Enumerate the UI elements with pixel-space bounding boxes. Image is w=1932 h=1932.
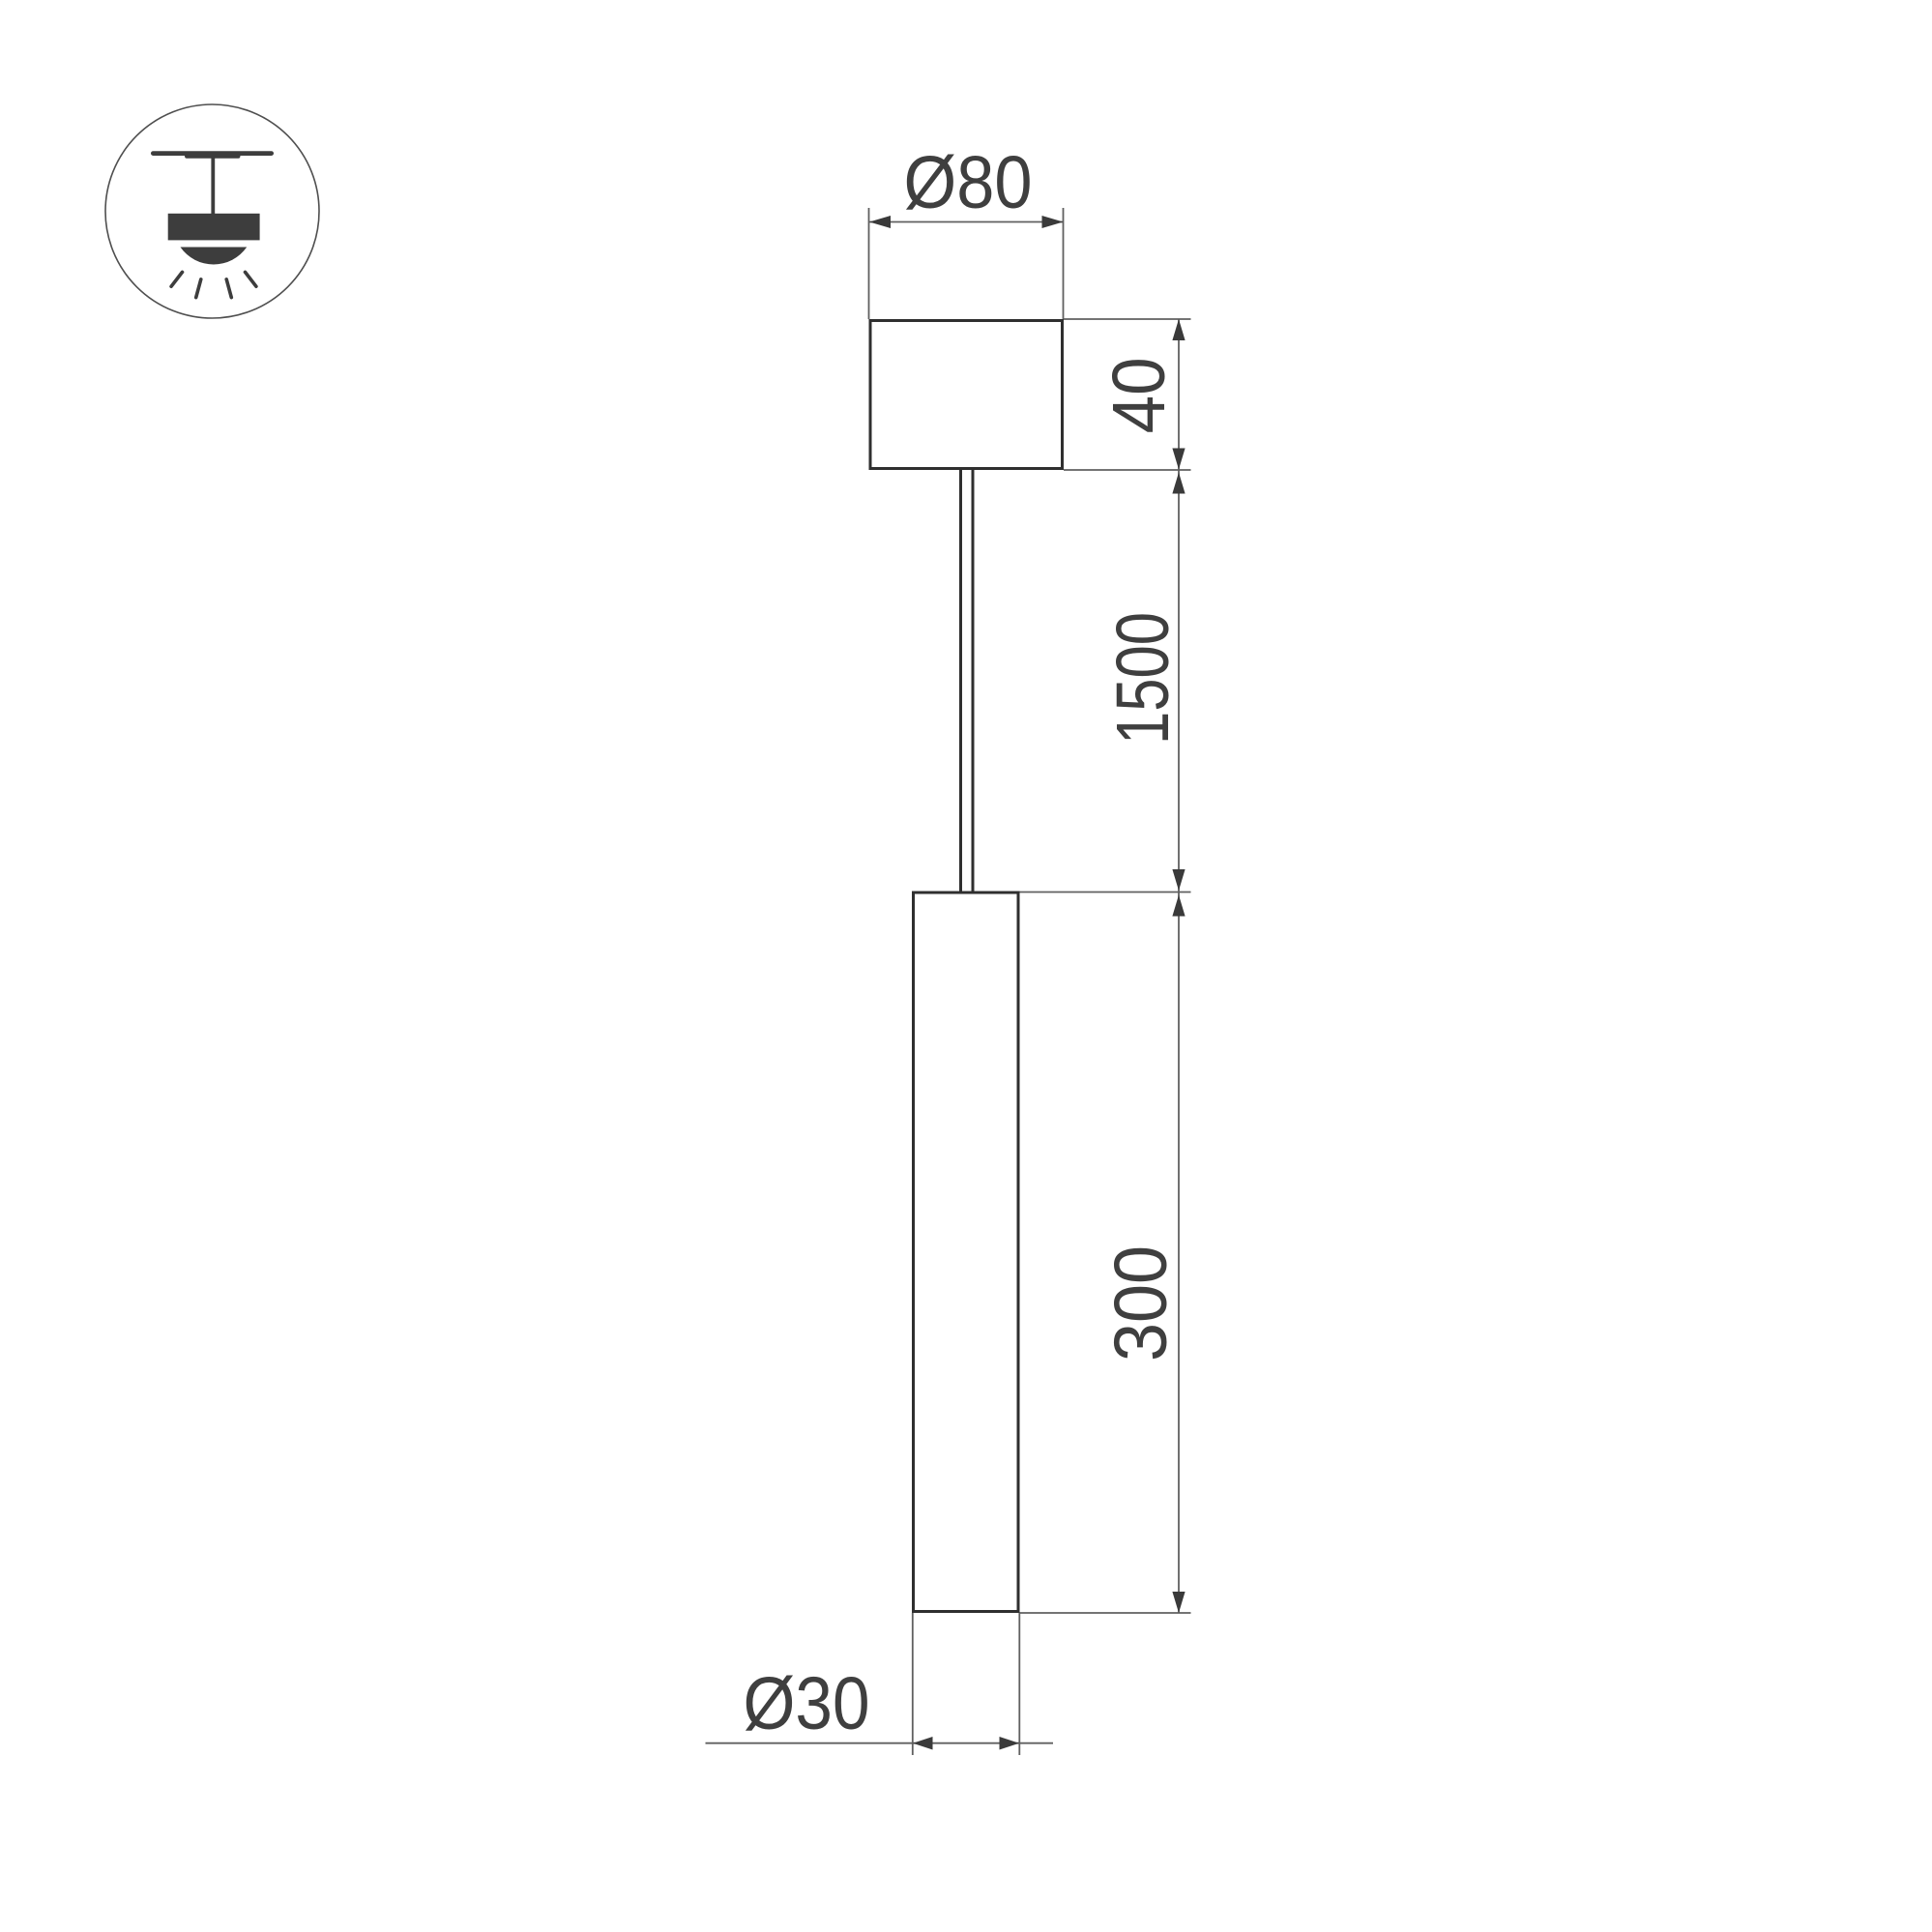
svg-text:40: 40 [1098,357,1181,433]
svg-text:300: 300 [1099,1245,1183,1361]
svg-text:1500: 1500 [1101,612,1185,745]
svg-text:Ø30: Ø30 [744,1662,870,1745]
svg-text:Ø80: Ø80 [904,141,1033,224]
